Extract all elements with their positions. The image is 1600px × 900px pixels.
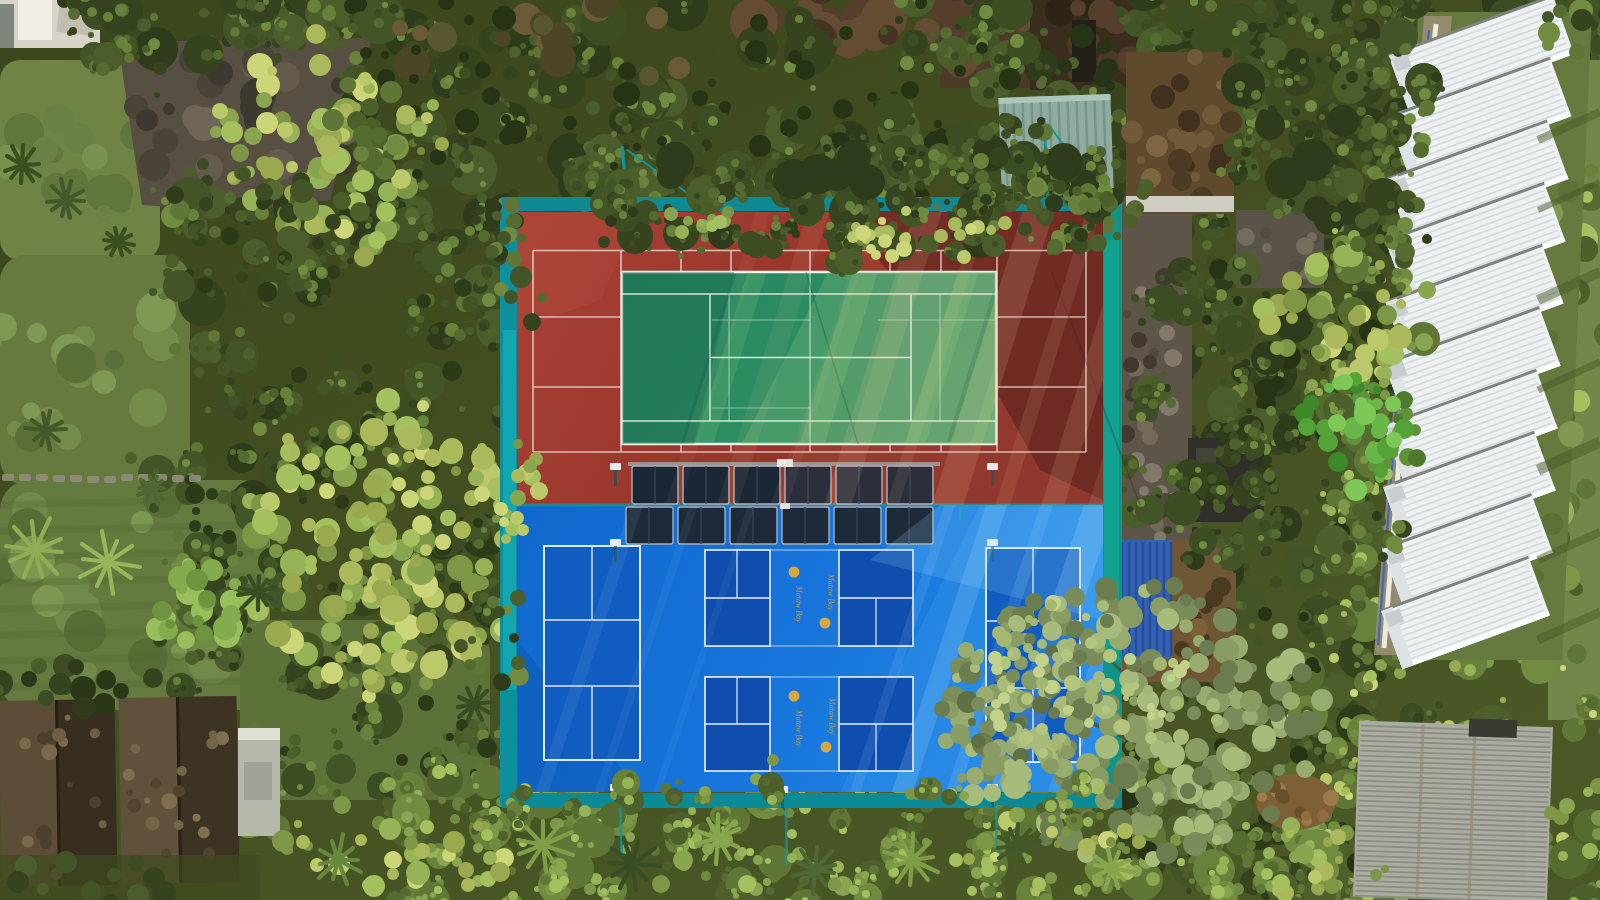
svg-text:Mataw Bay: Mataw Bay: [827, 697, 836, 735]
svg-text:Mataw Bay: Mataw Bay: [826, 573, 835, 611]
svg-text:Mataw Bay: Mataw Bay: [794, 585, 803, 623]
svg-text:Mataw Bay: Mataw Bay: [794, 709, 803, 747]
